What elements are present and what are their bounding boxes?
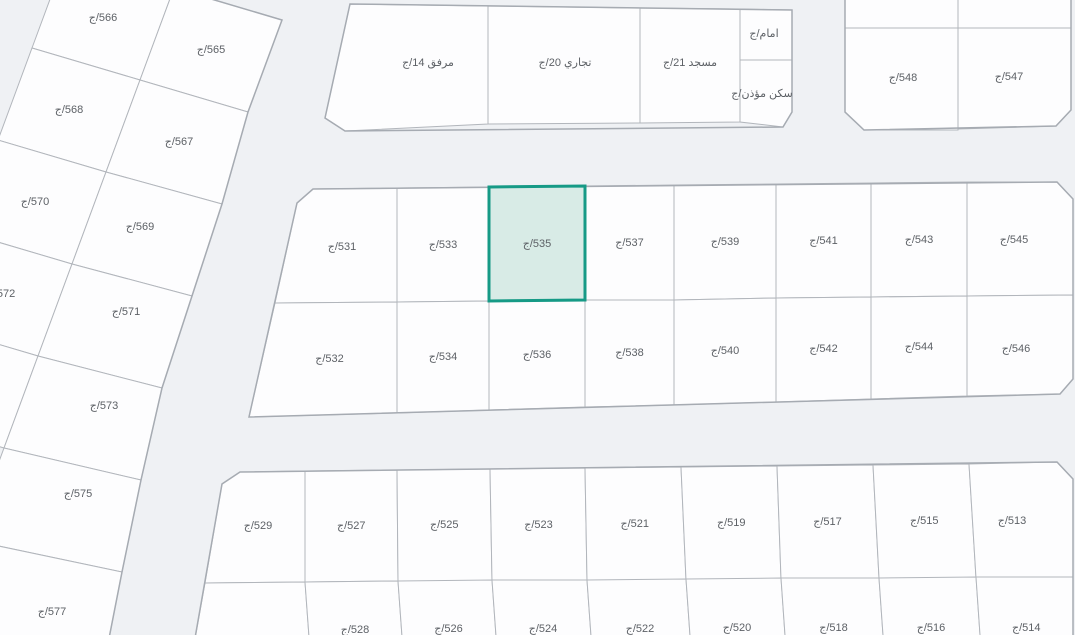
parcel[interactable] [205, 471, 305, 583]
parcel[interactable] [325, 4, 488, 131]
parcel[interactable] [781, 578, 886, 635]
parcel[interactable] [397, 469, 492, 581]
parcel[interactable] [488, 6, 640, 124]
parcel[interactable] [305, 581, 405, 635]
parcel[interactable] [776, 297, 871, 402]
cadastral-map: 566/ج565/ج568/ج567/ج570/ج569/ج572/ج571/ج… [0, 0, 1075, 635]
parcel[interactable] [967, 295, 1073, 396]
parcel[interactable] [585, 300, 674, 407]
parcel-selected[interactable] [489, 186, 585, 301]
parcel[interactable] [640, 8, 740, 123]
parcel[interactable] [958, 0, 1071, 28]
parcel[interactable] [879, 577, 983, 635]
parcel[interactable] [397, 187, 489, 302]
parcel[interactable] [845, 28, 958, 130]
parcel[interactable] [585, 467, 686, 580]
parcel[interactable] [681, 466, 781, 580]
parcel[interactable] [188, 582, 312, 635]
parcel[interactable] [967, 182, 1073, 296]
parcel[interactable] [397, 301, 489, 413]
parcel[interactable] [275, 188, 397, 303]
parcel-shapes-layer [0, 0, 1075, 635]
parcel[interactable] [958, 28, 1071, 129]
parcel[interactable] [305, 470, 398, 582]
parcel[interactable] [674, 298, 776, 405]
parcel[interactable] [492, 580, 594, 635]
parcel[interactable] [585, 185, 674, 300]
parcel[interactable] [686, 578, 788, 635]
parcel[interactable] [845, 0, 958, 28]
parcel[interactable] [871, 182, 967, 297]
parcel[interactable] [587, 579, 693, 635]
parcel[interactable] [871, 296, 967, 399]
parcel[interactable] [976, 577, 1073, 635]
parcel[interactable] [740, 9, 792, 60]
parcel[interactable] [777, 465, 879, 579]
parcel[interactable] [398, 580, 499, 635]
parcel[interactable] [490, 468, 587, 581]
parcel[interactable] [969, 462, 1073, 578]
parcel[interactable] [674, 184, 776, 300]
parcel[interactable] [776, 183, 871, 298]
parcel[interactable] [489, 300, 585, 410]
parcel[interactable] [740, 60, 792, 127]
parcel[interactable] [873, 464, 976, 578]
